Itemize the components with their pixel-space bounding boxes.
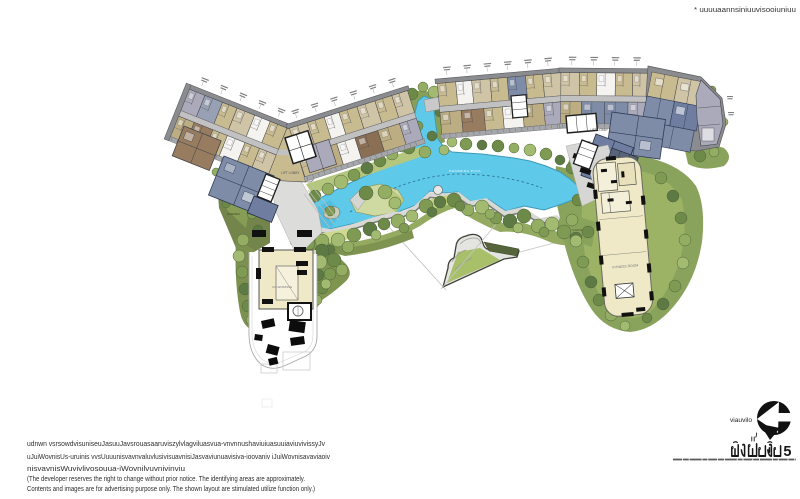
svg-text:Contents and images are for ad: Contents and images are for advertising …: [27, 486, 315, 493]
svg-text:LIFT LOBBY 2: LIFT LOBBY 2: [590, 128, 611, 132]
svg-text:SWIMMING POOL: SWIMMING POOL: [449, 169, 481, 173]
svg-text:uJuiWovnisUs-uruinis vvsUuuuni: uJuiWovnisUs-uruinis vvsUuuunisvavnvaluv…: [27, 452, 330, 461]
svg-text:viauvilo: viauvilo: [730, 417, 752, 424]
svg-text:CO-WORKING: CO-WORKING: [272, 285, 293, 289]
svg-text:udnwn vsrsowdvisuniseuJasuuJav: udnwn vsrsowdvisuniseuJasuuJavsrouasaaru…: [27, 439, 325, 448]
svg-text:5: 5: [783, 444, 791, 460]
svg-text:GARDEN: GARDEN: [227, 212, 240, 216]
svg-text:nisvavnisWuvivlivosouua-iWovni: nisvavnisWuvivlivosouua-iWovnilvuvnivinv…: [27, 464, 185, 473]
svg-text:LIFT LOBBY: LIFT LOBBY: [281, 171, 300, 175]
svg-text:* uuuuaannsiniuuvisooiuniuu: * uuuuaannsiniuuvisooiuniuu: [694, 7, 796, 14]
svg-text:(The developer reserves the ri: (The developer reserves the right to cha…: [27, 476, 305, 483]
